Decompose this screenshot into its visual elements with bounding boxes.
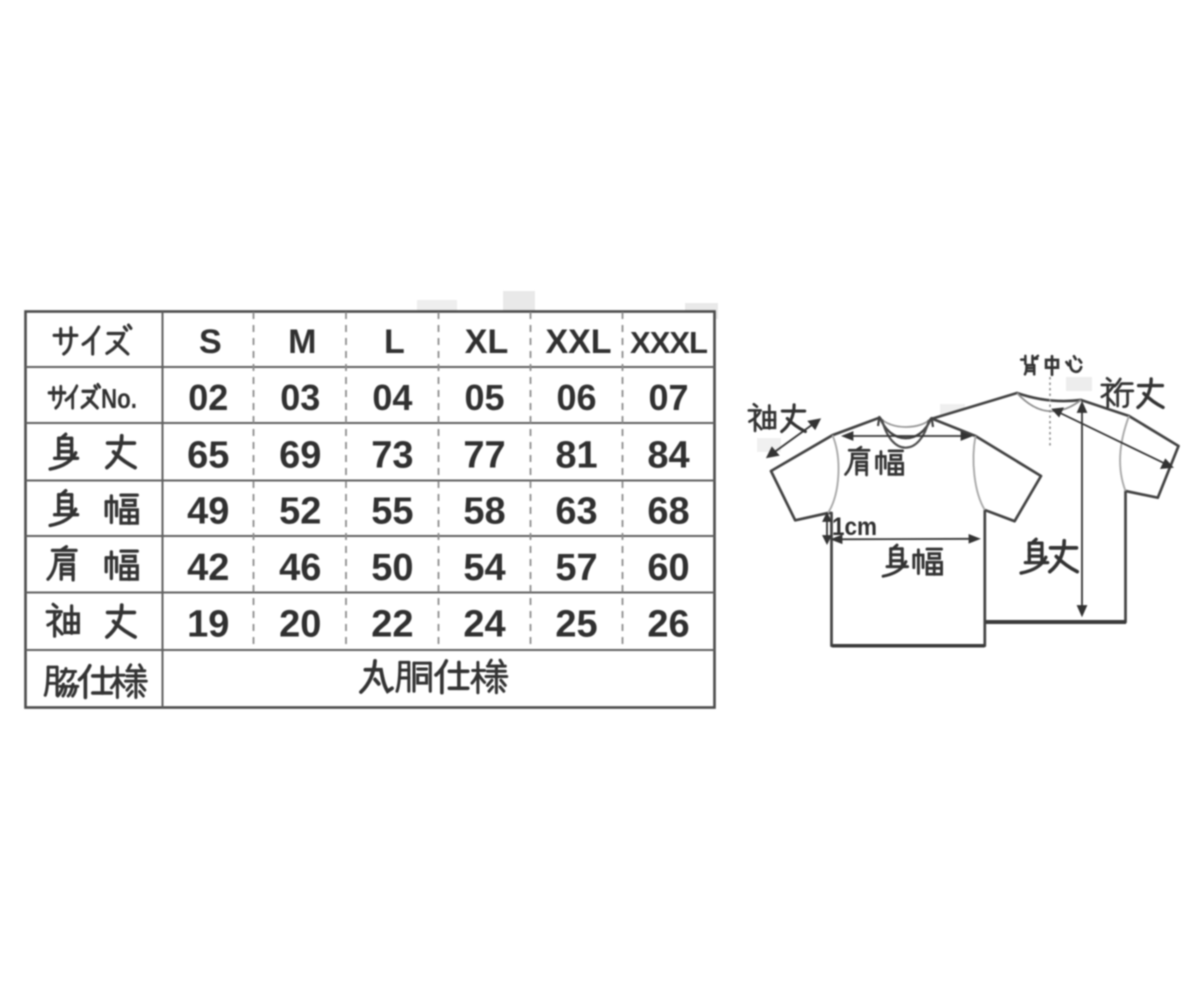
- svg-text:05: 05: [464, 377, 504, 418]
- svg-text:XXXL: XXXL: [630, 325, 707, 360]
- svg-text:20: 20: [279, 604, 321, 646]
- svg-text:58: 58: [463, 491, 505, 533]
- svg-text:M: M: [288, 323, 316, 361]
- svg-text:81: 81: [555, 435, 597, 477]
- svg-text:S: S: [199, 323, 222, 361]
- svg-text:63: 63: [555, 491, 597, 533]
- svg-text:06: 06: [556, 377, 596, 418]
- svg-text:25: 25: [555, 604, 597, 646]
- svg-text:19: 19: [187, 604, 229, 646]
- svg-text:69: 69: [279, 435, 321, 477]
- svg-text:L: L: [384, 323, 405, 361]
- svg-text:42: 42: [187, 547, 229, 589]
- svg-text:XXL: XXL: [545, 323, 611, 361]
- svg-text:04: 04: [372, 377, 412, 418]
- svg-text:60: 60: [647, 547, 689, 589]
- svg-text:50: 50: [371, 547, 413, 589]
- svg-text:49: 49: [187, 491, 229, 533]
- svg-text:03: 03: [280, 377, 320, 418]
- svg-text:68: 68: [647, 491, 689, 533]
- svg-text:84: 84: [647, 435, 689, 477]
- svg-text:No.: No.: [101, 383, 137, 414]
- svg-text:54: 54: [463, 547, 505, 589]
- svg-text:46: 46: [279, 547, 321, 589]
- svg-text:1cm: 1cm: [832, 513, 877, 541]
- svg-text:52: 52: [279, 491, 321, 533]
- svg-text:22: 22: [371, 604, 413, 646]
- svg-text:65: 65: [187, 435, 229, 477]
- svg-text:57: 57: [555, 547, 597, 589]
- svg-text:73: 73: [371, 435, 413, 477]
- svg-text:24: 24: [463, 604, 505, 646]
- svg-text:02: 02: [188, 377, 228, 418]
- svg-text:26: 26: [647, 604, 689, 646]
- svg-text:77: 77: [463, 435, 505, 477]
- svg-text:55: 55: [371, 491, 413, 533]
- svg-text:07: 07: [648, 377, 688, 418]
- svg-text:XL: XL: [465, 323, 508, 361]
